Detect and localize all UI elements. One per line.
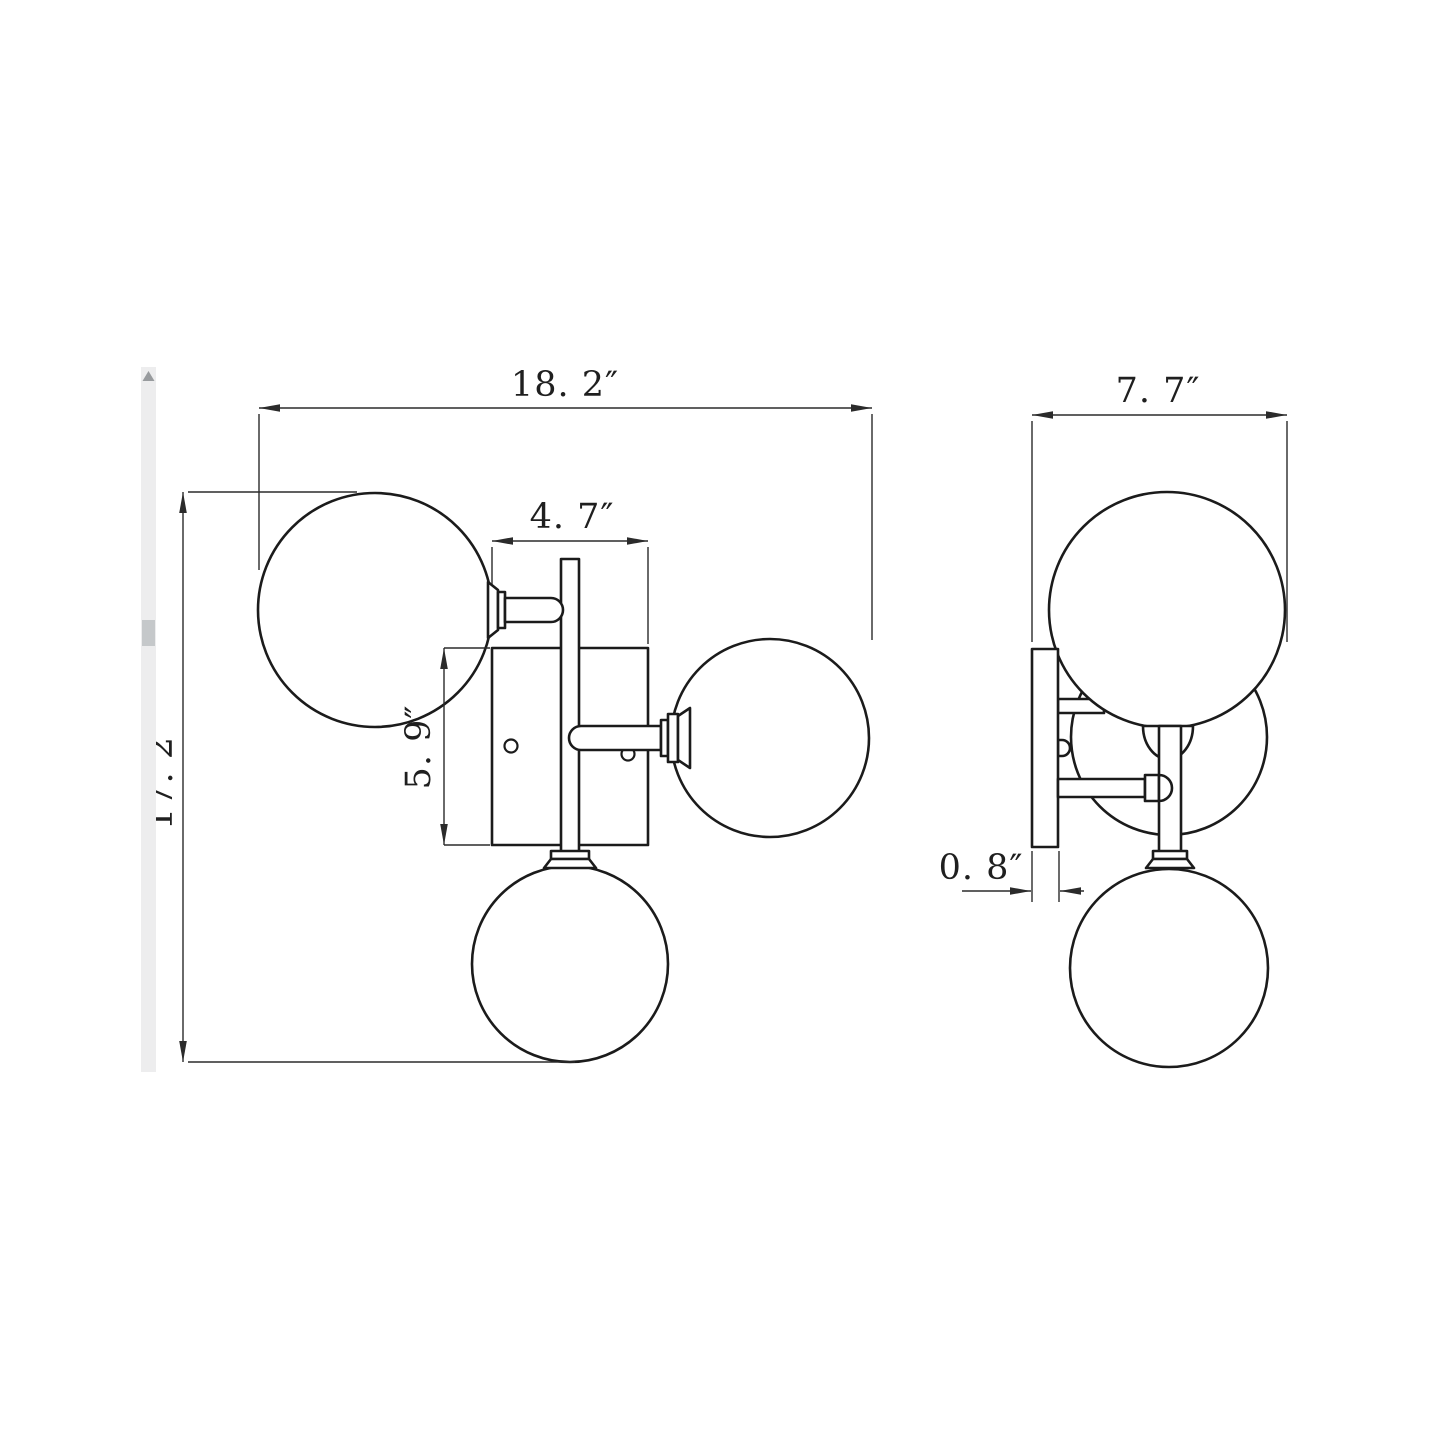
dim-label-front-width: 18. 2″ — [511, 365, 619, 405]
front-left-arm — [505, 598, 563, 622]
dim-label-backplate-height: 5. 9″ — [399, 705, 439, 790]
dimension-plate-thickness: 0. 8″ — [939, 848, 1084, 902]
side-view: 7. 7″ 0. 8″ — [939, 371, 1287, 1067]
front-left-globe-neck — [488, 582, 498, 638]
dim-label-backplate-width: 4. 7″ — [530, 497, 615, 537]
front-right-globe-neck — [678, 708, 690, 768]
dim-label-side-depth: 7. 7″ — [1116, 371, 1201, 411]
front-screw-hole-left — [505, 740, 518, 753]
front-bottom-globe — [472, 866, 668, 1062]
drawing-canvas: 18. 2″ 4. 7″ 17. 2″ 5. 9″ — [0, 0, 1445, 1445]
front-right-globe — [671, 639, 869, 837]
side-screw-knob — [1058, 740, 1070, 756]
scrollbar-thumb[interactable] — [142, 620, 155, 646]
scrollbar-track[interactable] — [141, 367, 156, 1072]
side-bottom-globe — [1070, 869, 1268, 1067]
front-bottom-globe-neck — [544, 859, 596, 868]
scrollbar[interactable] — [141, 367, 156, 1072]
side-lower-arm — [1058, 779, 1145, 797]
front-left-globe — [258, 493, 492, 727]
side-lower-arm-collar — [1145, 775, 1159, 801]
front-right-ring-large — [668, 714, 678, 762]
dim-label-plate-thickness: 0. 8″ — [939, 848, 1024, 888]
side-top-globe — [1049, 492, 1285, 728]
front-stem — [561, 559, 579, 852]
side-wall-plate — [1032, 649, 1058, 847]
side-bottom-globe-neck — [1146, 859, 1194, 868]
technical-drawing: 18. 2″ 4. 7″ 17. 2″ 5. 9″ — [0, 0, 1445, 1445]
front-right-arm — [569, 726, 661, 750]
front-view: 18. 2″ 4. 7″ 17. 2″ 5. 9″ — [141, 365, 872, 1062]
